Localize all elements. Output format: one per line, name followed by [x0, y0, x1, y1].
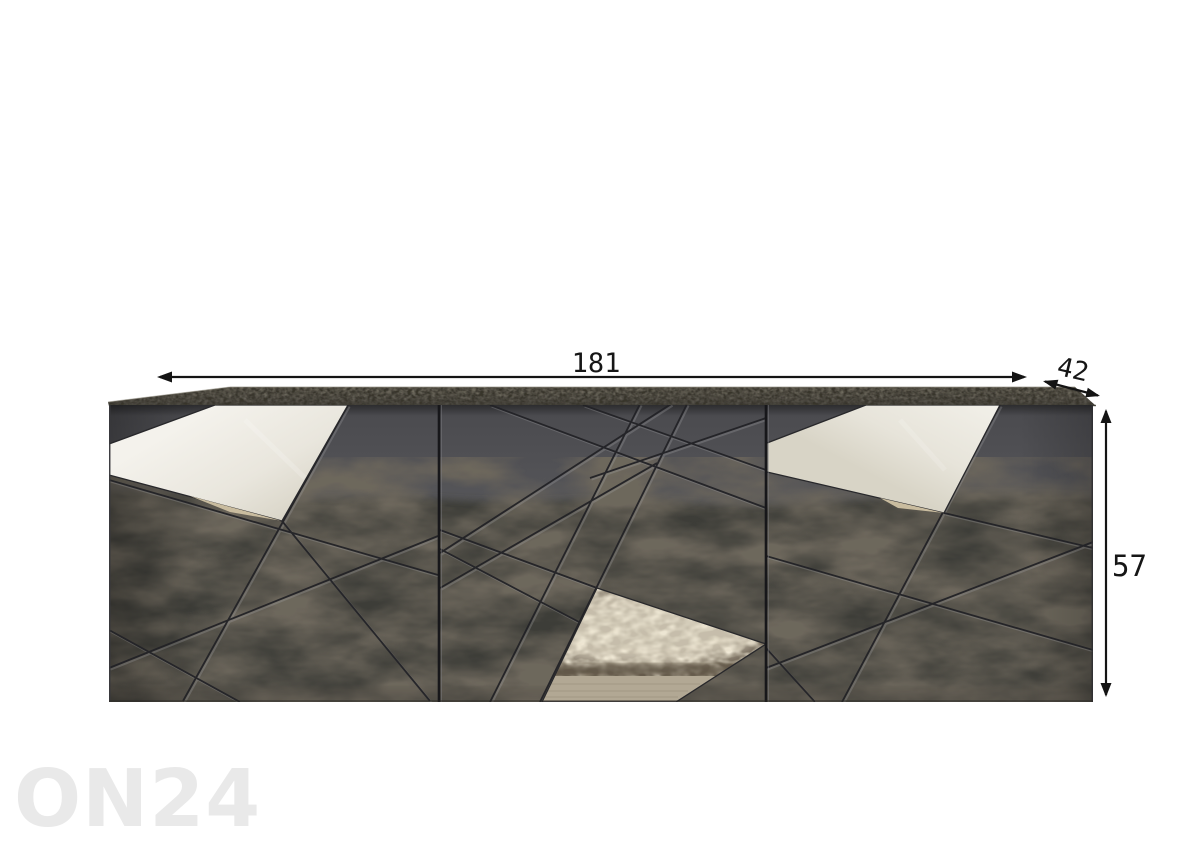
watermark: ON24 — [14, 760, 261, 839]
dimension-height: 57 — [1101, 409, 1147, 697]
width-label: 181 — [572, 348, 621, 379]
arrowhead-up-icon — [1101, 409, 1112, 423]
height-label: 57 — [1112, 549, 1147, 583]
scene-svg: 181 42 57 — [0, 0, 1200, 859]
sideboard-illustration — [100, 380, 1100, 710]
product-dimension-image: 181 42 57 ON24 — [0, 0, 1200, 859]
arrowhead-right-icon — [1012, 372, 1027, 383]
arrowhead-downright-icon — [1085, 388, 1100, 398]
arrowhead-left-icon — [157, 372, 172, 383]
dimension-width: 181 — [157, 348, 1027, 383]
right-shade — [1000, 405, 1093, 702]
arrowhead-down-icon — [1101, 683, 1112, 697]
depth-label: 42 — [1054, 352, 1091, 388]
sideboard-front — [100, 404, 1100, 710]
